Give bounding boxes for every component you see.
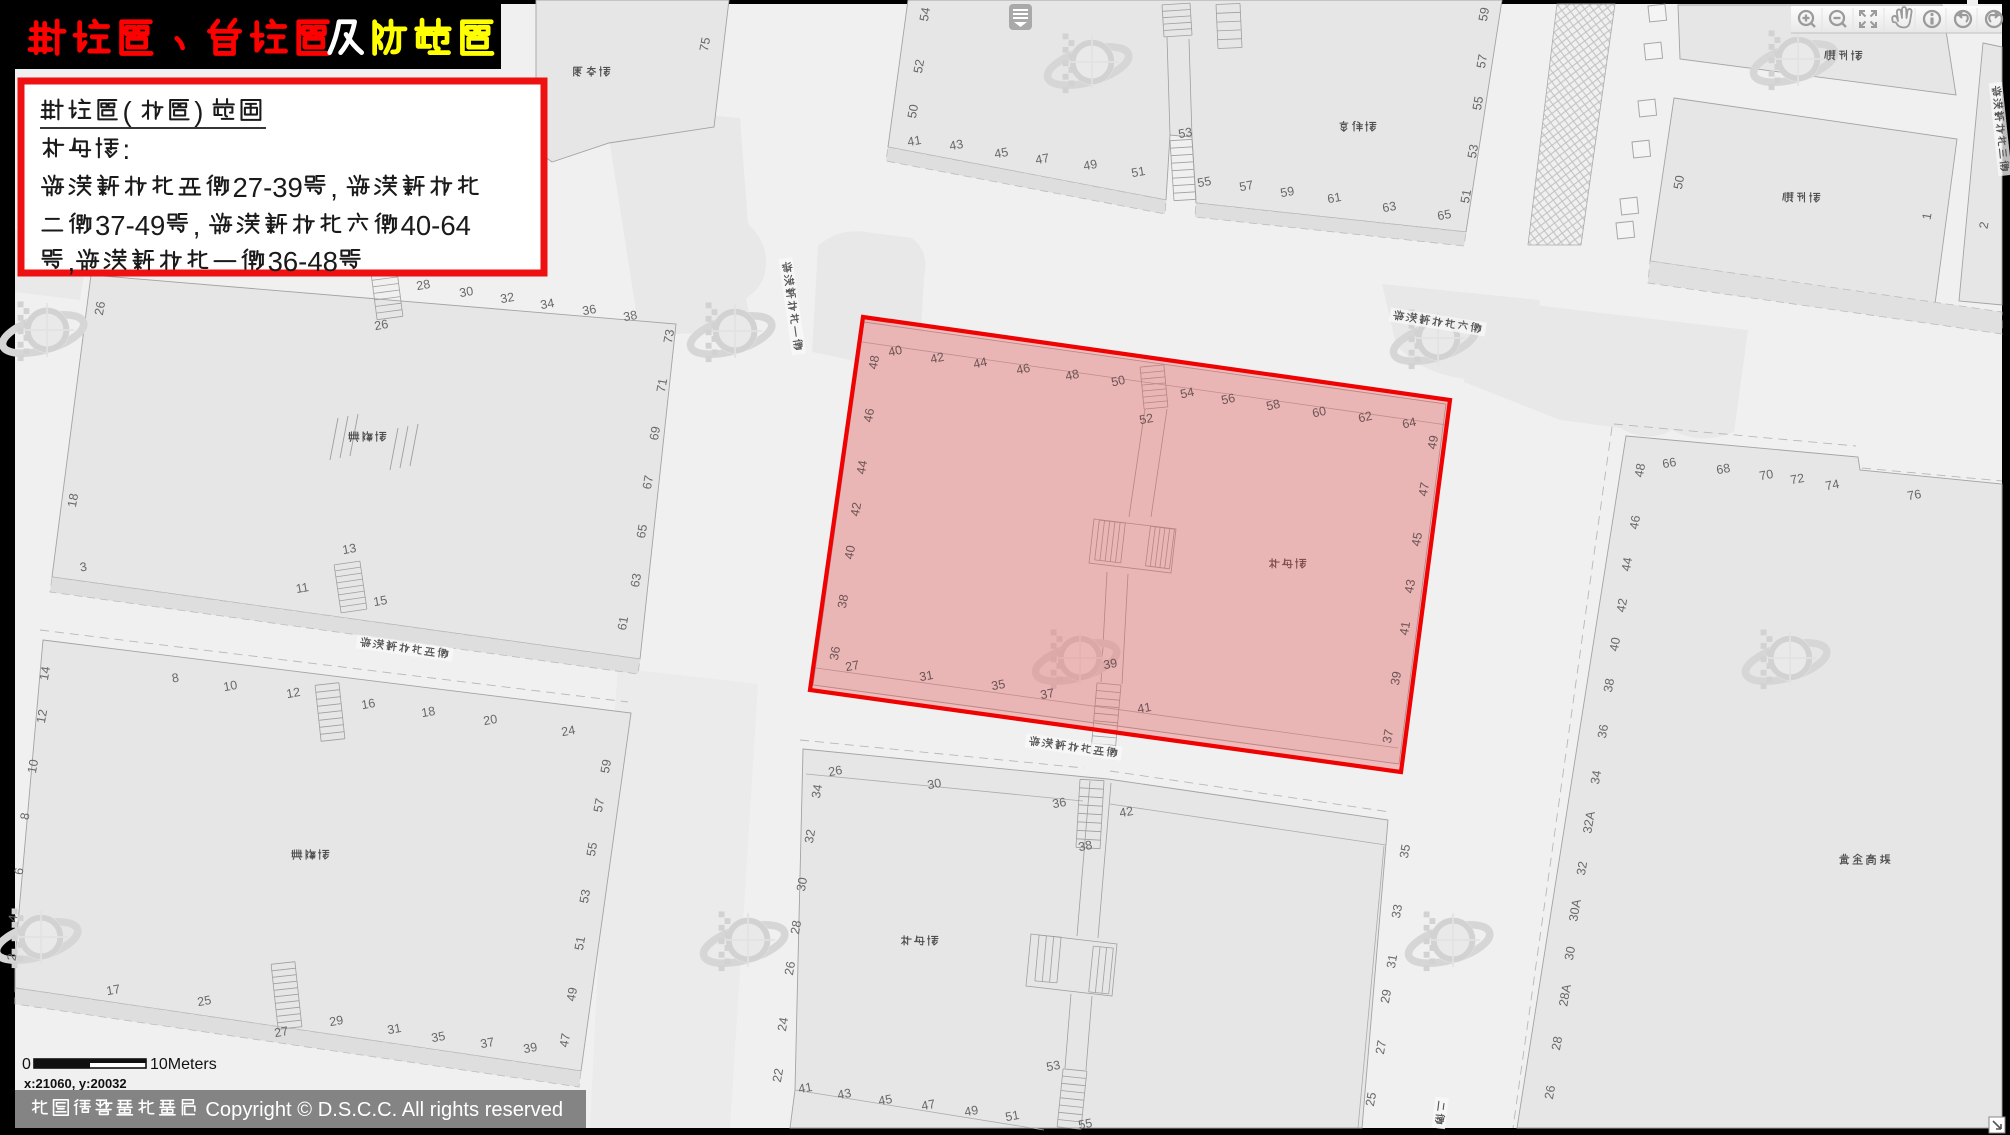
- svg-text:55: 55: [1196, 174, 1212, 190]
- svg-text:40-64: 40-64: [401, 210, 471, 241]
- svg-text:27-39: 27-39: [233, 172, 303, 203]
- svg-text:73: 73: [661, 328, 677, 344]
- svg-text:44: 44: [972, 355, 989, 372]
- svg-text:13: 13: [341, 541, 357, 557]
- svg-text:36: 36: [1051, 795, 1067, 811]
- svg-text:62: 62: [1357, 409, 1374, 426]
- svg-text:10: 10: [222, 678, 238, 694]
- svg-text:10: 10: [25, 758, 41, 774]
- svg-text:12: 12: [285, 685, 301, 701]
- svg-text:35: 35: [430, 1029, 446, 1045]
- svg-text:22: 22: [770, 1067, 786, 1083]
- svg-text:53: 53: [577, 888, 593, 904]
- svg-text:32: 32: [802, 828, 818, 844]
- svg-text:25: 25: [1363, 1091, 1379, 1107]
- svg-text:31: 31: [1384, 953, 1400, 969]
- svg-text::: :: [123, 134, 131, 165]
- svg-text:41: 41: [906, 133, 922, 149]
- svg-text:69: 69: [647, 425, 663, 441]
- svg-text:44: 44: [854, 459, 870, 475]
- svg-text:49: 49: [1082, 157, 1098, 173]
- svg-text:48: 48: [866, 354, 882, 370]
- svg-text:71: 71: [654, 377, 670, 393]
- svg-text:39: 39: [1388, 670, 1404, 686]
- svg-text:61: 61: [615, 615, 631, 631]
- svg-text:x:21060, y:20032: x:21060, y:20032: [24, 1076, 127, 1091]
- svg-text:16: 16: [360, 696, 376, 712]
- svg-text:55: 55: [584, 841, 600, 857]
- svg-text:45: 45: [993, 145, 1009, 161]
- svg-text:34: 34: [809, 783, 825, 799]
- svg-text:37: 37: [479, 1035, 495, 1051]
- svg-text:74: 74: [1824, 477, 1840, 493]
- svg-text:58: 58: [1265, 397, 1282, 414]
- svg-text:40: 40: [842, 544, 858, 560]
- svg-text:18: 18: [65, 492, 81, 508]
- svg-text:35: 35: [1397, 843, 1413, 859]
- svg-text:): ): [194, 96, 203, 127]
- svg-text:24: 24: [560, 723, 576, 739]
- svg-text:66: 66: [1661, 455, 1677, 471]
- svg-text:59: 59: [598, 758, 614, 774]
- svg-text:42: 42: [929, 350, 946, 367]
- svg-text:30: 30: [926, 776, 942, 792]
- svg-text:45: 45: [877, 1092, 893, 1108]
- svg-text:12: 12: [34, 708, 50, 724]
- svg-text:31: 31: [386, 1021, 402, 1037]
- svg-text:39: 39: [1102, 656, 1118, 672]
- svg-text:43: 43: [1402, 578, 1418, 594]
- svg-text:37: 37: [1039, 686, 1055, 702]
- svg-text:47: 47: [920, 1097, 936, 1113]
- svg-text:27: 27: [844, 658, 860, 674]
- svg-text:34: 34: [539, 296, 555, 312]
- svg-text:72: 72: [1789, 471, 1805, 487]
- svg-text:17: 17: [105, 982, 121, 998]
- svg-text:68: 68: [1715, 461, 1731, 477]
- svg-text:26: 26: [782, 960, 798, 976]
- svg-text:49: 49: [963, 1103, 979, 1119]
- svg-text:46: 46: [861, 407, 877, 423]
- svg-text:55: 55: [1077, 1116, 1093, 1132]
- svg-text:53: 53: [1465, 143, 1481, 159]
- svg-text:48: 48: [1632, 462, 1648, 478]
- svg-text:26: 26: [92, 300, 108, 316]
- svg-text:48: 48: [1064, 367, 1081, 384]
- svg-text:43: 43: [948, 137, 964, 153]
- svg-text:50: 50: [905, 103, 921, 119]
- svg-text:60: 60: [1311, 404, 1328, 421]
- svg-text:50: 50: [1671, 174, 1687, 190]
- svg-text:59: 59: [1476, 6, 1492, 22]
- svg-text:15: 15: [372, 593, 388, 609]
- svg-text:36-48: 36-48: [268, 246, 338, 277]
- svg-text:57: 57: [1238, 178, 1254, 194]
- svg-text:61: 61: [1326, 190, 1342, 206]
- svg-text:45: 45: [1409, 531, 1425, 547]
- svg-text:64: 64: [1401, 415, 1418, 432]
- svg-text:53: 53: [1045, 1058, 1061, 1074]
- svg-text:26: 26: [1542, 1084, 1558, 1100]
- svg-text:24: 24: [775, 1016, 791, 1032]
- svg-text:38: 38: [1601, 677, 1617, 693]
- svg-text:Copyright © D.S.C.C. All right: Copyright © D.S.C.C. All rights reserved: [205, 1099, 563, 1121]
- svg-text:42: 42: [1118, 804, 1134, 820]
- svg-text:,: ,: [330, 172, 338, 203]
- svg-text:30: 30: [458, 284, 474, 300]
- svg-text:47: 47: [1416, 481, 1432, 497]
- svg-text:0: 0: [22, 1056, 31, 1073]
- svg-text:53: 53: [1177, 125, 1193, 141]
- svg-text:51: 51: [1004, 1108, 1020, 1124]
- svg-text:36: 36: [827, 645, 843, 661]
- svg-text:25: 25: [196, 993, 212, 1009]
- svg-text:52: 52: [1138, 411, 1154, 427]
- svg-text:50: 50: [1110, 373, 1127, 390]
- svg-text:63: 63: [628, 572, 644, 588]
- svg-text:65: 65: [634, 523, 650, 539]
- svg-text:26: 26: [827, 763, 843, 779]
- svg-text:40: 40: [887, 343, 904, 360]
- svg-text:49: 49: [564, 986, 580, 1002]
- svg-text:37-49: 37-49: [95, 210, 165, 241]
- svg-text:30: 30: [794, 876, 810, 892]
- svg-text:42: 42: [1614, 597, 1630, 613]
- svg-text:33: 33: [1389, 903, 1405, 919]
- svg-text:56: 56: [1220, 391, 1237, 408]
- svg-text:10Meters: 10Meters: [150, 1056, 217, 1073]
- svg-text:14: 14: [37, 665, 53, 681]
- svg-text:65: 65: [1436, 207, 1452, 223]
- svg-text:39: 39: [522, 1040, 538, 1056]
- svg-text:29: 29: [328, 1013, 344, 1029]
- svg-text:36: 36: [1595, 723, 1611, 739]
- svg-text:38: 38: [835, 593, 851, 609]
- svg-text:55: 55: [1470, 95, 1486, 111]
- svg-text:70: 70: [1758, 467, 1774, 483]
- svg-text:46: 46: [1015, 361, 1032, 378]
- svg-text:57: 57: [591, 797, 607, 813]
- svg-text:41: 41: [1397, 620, 1413, 636]
- svg-text:11: 11: [295, 580, 310, 596]
- svg-text:32: 32: [499, 290, 515, 306]
- svg-text:28: 28: [415, 277, 431, 293]
- svg-text:51: 51: [572, 935, 588, 951]
- svg-text:34: 34: [1588, 769, 1604, 785]
- svg-text:76: 76: [1906, 487, 1922, 503]
- svg-text:28: 28: [1549, 1035, 1565, 1051]
- svg-text:30: 30: [1562, 945, 1578, 961]
- svg-text:20: 20: [482, 712, 498, 728]
- svg-text:52: 52: [911, 58, 927, 74]
- svg-text:37: 37: [1380, 728, 1396, 744]
- svg-text:(: (: [123, 96, 132, 127]
- svg-text:54: 54: [917, 6, 933, 22]
- svg-text:29: 29: [1378, 988, 1394, 1004]
- svg-text:75: 75: [697, 36, 713, 52]
- svg-text:27: 27: [1373, 1039, 1389, 1055]
- svg-text:59: 59: [1279, 184, 1295, 200]
- svg-text:47: 47: [1034, 151, 1050, 167]
- svg-text:51: 51: [1130, 164, 1146, 180]
- svg-text:32: 32: [1574, 860, 1590, 876]
- svg-text:51: 51: [1458, 188, 1474, 204]
- svg-text:67: 67: [640, 474, 656, 490]
- svg-text:46: 46: [1627, 514, 1643, 530]
- svg-text:49: 49: [1425, 434, 1441, 450]
- svg-text:38: 38: [1077, 838, 1093, 854]
- svg-text:43: 43: [836, 1086, 852, 1102]
- svg-text:35: 35: [990, 677, 1006, 693]
- svg-text:41: 41: [1136, 700, 1152, 716]
- svg-text:41: 41: [797, 1080, 813, 1096]
- svg-text:28: 28: [788, 919, 804, 935]
- svg-text:38: 38: [622, 308, 638, 324]
- svg-text:27: 27: [273, 1024, 289, 1040]
- svg-text:,: ,: [68, 246, 76, 277]
- svg-text:42: 42: [848, 501, 864, 517]
- svg-text:63: 63: [1381, 199, 1397, 215]
- svg-text:44: 44: [1619, 556, 1635, 572]
- svg-text:31: 31: [918, 668, 934, 684]
- svg-text:18: 18: [420, 704, 436, 720]
- svg-text:47: 47: [557, 1032, 573, 1048]
- svg-text:26: 26: [373, 317, 389, 333]
- svg-text:40: 40: [1607, 636, 1623, 652]
- svg-text:57: 57: [1474, 53, 1490, 69]
- svg-text:36: 36: [581, 302, 597, 318]
- svg-text:54: 54: [1179, 385, 1196, 402]
- svg-text:,: ,: [193, 210, 201, 241]
